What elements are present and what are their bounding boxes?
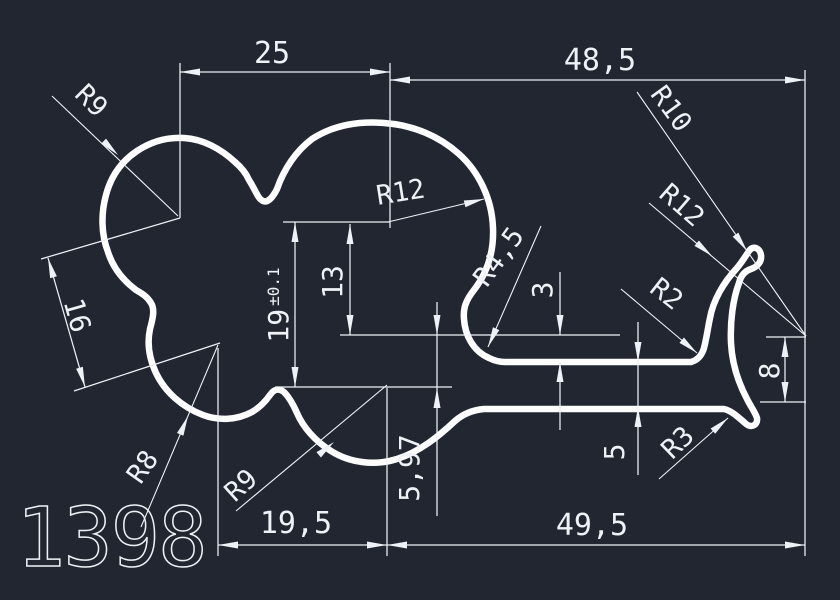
dim-width-top-right: 48,5 [390, 43, 805, 84]
radius-label: R2 [644, 272, 689, 316]
radius-r12-main: R12 [374, 173, 485, 222]
radius-r2-corner: R2 [621, 272, 699, 356]
dim-width-top-left: 25 [180, 36, 390, 76]
dim-arm-thickness: 5 [598, 322, 642, 475]
part-number: 1398 [16, 491, 205, 586]
dim-label: 5 [598, 444, 631, 461]
radius-label: R4,5 [467, 222, 530, 293]
dim-label: 16 [57, 295, 98, 337]
radius-label: R10 [644, 80, 698, 138]
radius-r9-top: R9 [52, 79, 178, 216]
dim-height-inner: 13 [316, 224, 354, 335]
dim-label: 25 [254, 36, 290, 71]
dim-label: 8 [753, 363, 786, 380]
dim-label: 3 [526, 282, 559, 299]
dim-label: 19,5 [260, 506, 332, 541]
radius-label: R3 [656, 420, 701, 465]
dim-hook-height: 8 [753, 337, 789, 402]
radius-label: R12 [374, 173, 427, 211]
dim-label: 13 [316, 265, 349, 299]
dim-width-bottom-left: 19,5 [218, 506, 387, 549]
radius-r9-lobe: R9 [219, 385, 387, 511]
radius-label: R8 [121, 445, 165, 489]
radius-label: R9 [69, 79, 114, 124]
radius-r3-tip: R3 [656, 415, 731, 479]
dim-label: 19±0.1 [262, 267, 295, 342]
dim-width-bottom-right: 49,5 [387, 508, 805, 549]
dim-label: 49,5 [556, 508, 628, 543]
dim-lobe-center-distance: 16 [45, 257, 98, 388]
dim-lobe-drop: 5,97 [393, 302, 441, 516]
dim-label: 5,97 [393, 434, 426, 501]
radius-label: R9 [219, 463, 264, 508]
dim-height-overall: 19±0.1 [262, 222, 299, 387]
dim-label: 48,5 [564, 43, 636, 78]
cad-drawing-canvas: 25 48,5 19,5 49,5 19±0.1 13 [0, 0, 840, 600]
